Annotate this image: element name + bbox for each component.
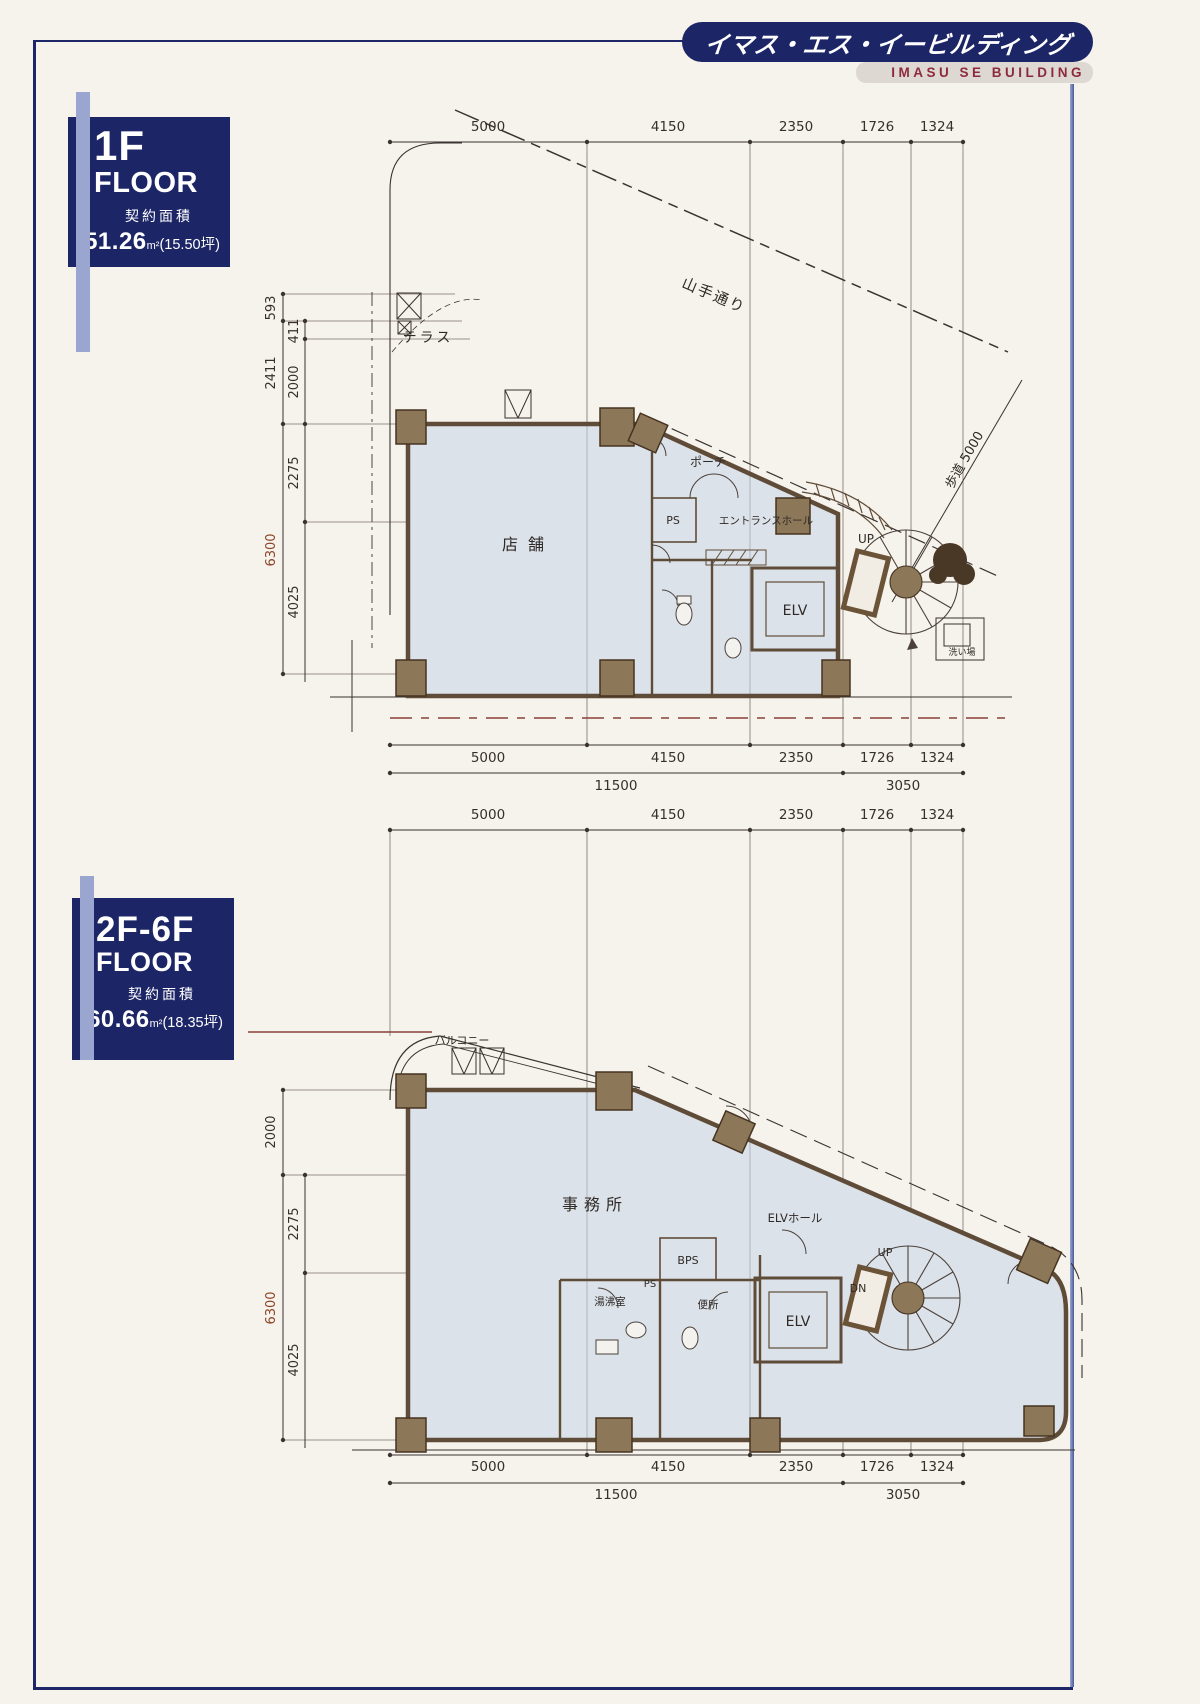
ps-label-2f: PS [644, 1279, 656, 1290]
floor1-area-caption: 契約面積 [94, 206, 224, 226]
up-label-1f: UP [858, 532, 874, 546]
dim-label: 2275 [287, 1207, 302, 1240]
dim-label: 4150 [651, 807, 685, 823]
floor1-area-value: 51.26 [84, 228, 147, 255]
dim-label: 2350 [779, 119, 813, 135]
building-title-en-band: IMASU SE BUILDING [856, 62, 1093, 83]
dim-label: 1324 [920, 750, 954, 766]
floor2-area: 60.66m²(18.35坪) [82, 1006, 228, 1034]
dim-label: 6300 [264, 1291, 279, 1324]
entrance-hall-label: エントランスホール [719, 515, 813, 527]
floor1-label-box: 1F FLOOR 契約面積 51.26m²(15.50坪) [68, 117, 230, 267]
tree [929, 543, 975, 585]
floor1-word: FLOOR [94, 168, 224, 198]
plan1-top-dims: 5000 4150 2350 1726 1324 [388, 119, 965, 144]
dim-total-label: 11500 [595, 1487, 638, 1503]
dim-total-label: 3050 [886, 1487, 920, 1503]
dim-label: 2000 [264, 1115, 279, 1148]
dim-label: 2000 [287, 365, 302, 398]
dim-label: 411 [287, 319, 302, 344]
street-name-label: 山手通り [679, 274, 749, 317]
floorplan-1f: 山手通り 歩道 5000 テラス [230, 95, 1090, 795]
dim-label: 1324 [920, 807, 954, 823]
office-label: 事務所 [562, 1195, 628, 1214]
plan1-bottom-dims: 5000 4150 2350 1726 1324 11500 3050 [388, 743, 965, 794]
dim-label: 1726 [860, 807, 894, 823]
elv-label-2f: ELV [786, 1314, 811, 1330]
floor2-area-value: 60.66 [87, 1006, 150, 1033]
floorplan-2f6f: バルコニー [230, 795, 1090, 1515]
building-title-en: IMASU SE BUILDING [891, 65, 1085, 80]
page: { "colors":{"navy":"#1c2566","lavender":… [0, 0, 1200, 1704]
building-title-jp: イマス・エス・イービルディング [703, 25, 1073, 60]
store-room-floor [408, 424, 838, 696]
frame-bottom-line [33, 1687, 1073, 1690]
dim-label: 4150 [651, 750, 685, 766]
dim-label: 1726 [860, 1459, 894, 1475]
dim-label: 5000 [471, 119, 505, 135]
floor2-label-box: 2F-6F FLOOR 契約面積 60.66m²(18.35坪) [72, 898, 234, 1060]
dim-label: 1324 [920, 1459, 954, 1475]
floor1-area-unit: m² [147, 240, 160, 252]
floor1-area: 51.26m²(15.50坪) [80, 228, 224, 256]
floor2-area-unit: m² [150, 1018, 163, 1030]
plan1-left-dims: 593 2411 6300 411 2000 2275 4025 [264, 292, 307, 682]
wash-area-label: 洗い場 [948, 646, 975, 658]
floor2-area-caption: 契約面積 [96, 984, 228, 1004]
elv-hall-label: ELVホール [768, 1211, 823, 1225]
frame-top-line [36, 40, 700, 42]
dim-label: 1324 [920, 119, 954, 135]
dim-label: 2350 [779, 1459, 813, 1475]
sidewalk-label: 歩道 5000 [943, 429, 988, 491]
floor1-accent-bar [76, 92, 90, 352]
terrace-label: テラス [403, 330, 454, 346]
dim-label: 593 [264, 296, 279, 321]
floor2-area-tsubo: (18.35坪) [162, 1015, 222, 1031]
floor1-number: 1F [94, 125, 224, 168]
vent-symbols-2f [452, 1048, 504, 1074]
dim-label: 5000 [471, 750, 505, 766]
plan2-bottom-dims: 5000 4150 2350 1726 1324 11500 3050 [388, 1453, 965, 1503]
dim-label: 2350 [779, 750, 813, 766]
dim-label: 6300 [264, 533, 279, 566]
floor2-word: FLOOR [96, 948, 228, 976]
toilet-label: 便所 [698, 1298, 719, 1311]
dim-label: 5000 [471, 807, 505, 823]
balcony-label: バルコニー [435, 1034, 490, 1047]
dim-label: 1726 [860, 119, 894, 135]
dn-label-2f: DN [850, 1282, 867, 1295]
floor2-number: 2F-6F [96, 912, 228, 948]
dim-label: 2275 [287, 456, 302, 489]
plan2-top-dims: 5000 4150 2350 1726 1324 [388, 807, 965, 832]
dim-label: 1726 [860, 750, 894, 766]
frame-left-line [33, 40, 36, 1690]
vent-symbols-1f [397, 293, 531, 418]
dim-label: 4025 [287, 1343, 302, 1376]
bps-label: BPS [677, 1254, 698, 1267]
dim-total-label: 3050 [886, 778, 920, 794]
kitchenette-label: 湯沸室 [594, 1295, 626, 1308]
ps-label-1f: PS [666, 514, 680, 527]
floor2-accent-bar [80, 876, 94, 1060]
dim-label: 4150 [651, 1459, 685, 1475]
dim-label: 4150 [651, 119, 685, 135]
dim-total-label: 11500 [595, 778, 638, 794]
floor1-area-tsubo: (15.50坪) [159, 237, 219, 253]
porch-label: ポーチ [690, 455, 726, 469]
plan2-left-dims: 2000 6300 2275 4025 [264, 1088, 307, 1448]
dim-label: 2411 [264, 356, 279, 389]
store-label: 店舗 [502, 535, 554, 554]
elv-label-1f: ELV [783, 603, 808, 619]
building-title-banner: イマス・エス・イービルディング [682, 22, 1093, 62]
dim-label: 5000 [471, 1459, 505, 1475]
dim-label: 4025 [287, 585, 302, 618]
up-label-2f: UP [878, 1246, 893, 1259]
dim-label: 2350 [779, 807, 813, 823]
